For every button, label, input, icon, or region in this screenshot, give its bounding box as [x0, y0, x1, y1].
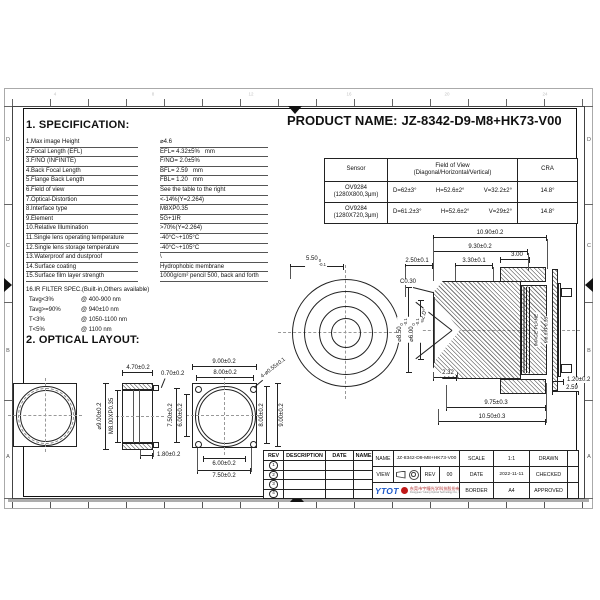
image-plane-label: IMAGE PLANE [536, 313, 541, 348]
spec-label: 14.Surface coating [26, 263, 138, 273]
ext-line [433, 372, 434, 379]
dim-line [438, 421, 546, 422]
layout-holder-circle [20, 390, 72, 442]
ruler-ticks-top [12, 99, 585, 106]
thread-spec-label: M8.0XP0.35 [546, 316, 551, 344]
dim-line [203, 458, 246, 459]
dim-line [140, 455, 153, 456]
zone-letter: A [587, 454, 591, 460]
spec-section-title: 1. SPECIFICATION: [26, 119, 129, 131]
tb-approved-label: APPROVED [529, 482, 567, 498]
spec-value: ⌀4.6 [160, 138, 268, 148]
dim-line [500, 259, 530, 260]
ext-line [455, 267, 456, 281]
dim-line [196, 377, 254, 378]
dim-line [405, 265, 433, 266]
holder-lip-top [153, 385, 159, 391]
rev-empty-cell [353, 489, 373, 498]
label: DRAWN [539, 456, 558, 462]
spec-label: 13.Waterproof and dustproof [26, 253, 138, 263]
dim-line [455, 265, 493, 266]
spec-label: 11.Single lens operating temperature [26, 234, 138, 244]
dim-line [176, 388, 177, 443]
value: 2022-11-11 [499, 472, 523, 477]
rev-number-cell: 2 [264, 470, 283, 479]
spec-label: 12.Single lens storage temperature [26, 244, 138, 254]
rev-number-cell: 1 [264, 460, 283, 469]
dim-line [105, 383, 106, 450]
spec-row: 13.Waterproof and dustproof\ [26, 253, 276, 263]
label: SCALE [468, 456, 485, 462]
ir-condition: Tavg<3% [26, 297, 81, 303]
ir-range: @ 940±10 nm [81, 307, 119, 313]
spec-row: 8.Interface typeM8XP0.35 [26, 205, 276, 215]
tb-logo-cell: YTOT 东莞市宇瞳光学科技股份有限公司Dongguan Yutong Opti… [373, 482, 459, 498]
image-plane-plate [558, 283, 561, 377]
label: CHECKED [536, 472, 561, 478]
thread-marks [521, 287, 531, 373]
spec-value: -40°C~+105°C [160, 234, 268, 244]
dim-5-50: 5.500-0.1 [305, 256, 327, 268]
ir-condition: Tavg>=90% [26, 307, 81, 313]
spec-row: 14.Surface coatingHydrophobic membrane [26, 263, 276, 273]
ext-line [290, 267, 291, 279]
centerline [116, 416, 164, 417]
dim-line [552, 391, 579, 392]
dim-thread-m8: M8.00XP0.35 [109, 397, 115, 435]
spec-value: BFL= 2.59 mm [160, 167, 268, 177]
spec-row: 2.Focal Length (EFL)EFL= 4.32±5% mm [26, 148, 276, 158]
sensor-header: Sensor [346, 166, 365, 173]
dim-line [186, 394, 187, 437]
fov-cell: D=61.2±3°H=52.6±2°V=29±2° [387, 202, 517, 223]
tb-drawn-label: DRAWN [529, 451, 567, 466]
rev-number: 4 [269, 490, 278, 499]
fov-vertical: V=32.2±2° [484, 188, 512, 195]
title-block: NAME JZ-8342-D9-M8+HK73-V00 SCALE 1:1 DR… [372, 450, 579, 499]
fov-diagonal: D=62±3° [393, 188, 417, 195]
ext-line [153, 450, 154, 457]
brand-emblem-icon [401, 487, 408, 494]
spec-label: 5.Flange Back Length [26, 176, 138, 186]
fov-horizontal: H=52.6±2° [436, 188, 465, 195]
dim-line [117, 390, 118, 443]
spec-value: <-14%(Y=2.264) [160, 196, 268, 206]
label: APPROVED [534, 488, 563, 494]
zone-letter: C [6, 243, 10, 249]
projection-target-icon [409, 470, 419, 480]
tb-checked-label: CHECKED [529, 466, 567, 482]
rev-header: REV [264, 451, 283, 460]
spec-label: 10.Relative Illumination [26, 224, 138, 234]
dim-1-80: 1.80±0.2 [156, 452, 181, 458]
sensor-fov-table: Sensor Field of View(Diagonal/Horizontal… [324, 158, 578, 224]
optical-section-title: 2. OPTICAL LAYOUT: [26, 334, 140, 346]
spec-value: 1000g/cm² pencil 500, back and forth [160, 272, 268, 282]
fov-vertical: V=29±2° [489, 209, 512, 216]
ir-filter-row: T<5%@ 1100 nm [26, 325, 276, 335]
cra-cell: 14.8° [517, 202, 577, 223]
spec-label: 6.Field of view [26, 186, 138, 196]
value: 1:1 [508, 456, 515, 462]
dim-line [433, 377, 457, 378]
ext-line [457, 372, 458, 379]
sensor-resolution: (1280X720,3μm) [334, 213, 379, 220]
chamfer-label: C0.30 [399, 279, 417, 285]
holder-back-circle [198, 389, 253, 444]
tb-border-value: A4 [493, 482, 529, 498]
dim-line [446, 407, 546, 408]
corner-hole [195, 386, 202, 393]
dim-3-00: 3.00 [510, 252, 524, 258]
spec-value: 5G+1IR [160, 215, 268, 225]
rev-header-label: DATE [332, 453, 346, 459]
rev-empty-cell [283, 460, 325, 469]
cra-value: 14.8° [540, 209, 554, 216]
spec-row: 6.Field of viewSee the table to the righ… [26, 186, 276, 196]
rev-header-label: NAME [356, 453, 372, 459]
dim-9-75: 9.75±0.3 [483, 400, 508, 406]
dim-7-50-left: 7.50±0.2 [168, 402, 174, 427]
tb-checked-value [567, 466, 578, 482]
centerline [186, 415, 264, 416]
dim-3-30: 3.30±0.1 [461, 258, 486, 264]
fov-cell: D=62±3°H=52.6±2°V=32.2±2° [387, 181, 517, 202]
sensor-resolution: (1280X800,3μm) [334, 192, 379, 199]
zone-letter: B [6, 348, 10, 354]
fov-header-cell: Field of View(Diagonal/Horizontal/Vertic… [387, 159, 517, 181]
rev-empty-cell [353, 470, 373, 479]
spec-value: See the table to the right [160, 186, 268, 196]
spec-row: 11.Single lens operating temperature-40°… [26, 234, 276, 244]
corner-hole [195, 441, 202, 448]
tb-date-label: DATE [459, 466, 493, 482]
tb-approved-value [567, 482, 578, 498]
ir-range: @ 1050-1100 nm [81, 317, 127, 323]
zone-number: 12 [248, 92, 253, 97]
dim-line [197, 470, 251, 471]
ir-condition: T<5% [26, 327, 81, 333]
dim-4-70: 4.70±0.2 [125, 365, 150, 371]
dim-6-00: ⌀6.000-0.1 [409, 317, 421, 343]
zone-number: 20 [444, 92, 449, 97]
ext-line [433, 239, 434, 281]
projection-frustum-icon [396, 471, 406, 479]
dim-9-00-dia: ⌀9.00±0.2 [97, 402, 103, 431]
dim-7-50-bottom: 7.50±0.2 [211, 473, 236, 479]
sensor-model: OV9284 [345, 206, 367, 213]
ir-filter-row: Tavg>=90%@ 940±10 nm [26, 305, 276, 315]
dim-10-90: 10.90±0.2 [476, 230, 505, 236]
tb-scale-label: SCALE [459, 451, 493, 466]
product-name: PRODUCT NAME:JZ-8342-D9-M8+HK73-V00 [287, 113, 562, 128]
cra-cell: 14.8° [517, 181, 577, 202]
cra-header: CRA [541, 166, 554, 173]
tb-drawn-value [567, 451, 578, 466]
dim-0-70: 0.70±0.2 [160, 371, 185, 377]
sensor-header-cell: Sensor [325, 159, 387, 181]
value: JZ-8342-D9-M8+HK73-V00 [397, 456, 457, 461]
ext-line [446, 385, 447, 409]
dim-line [277, 383, 278, 447]
ext-line [493, 267, 494, 281]
rev-number-cell: 4 [264, 489, 283, 498]
tol-lower: -0.1 [417, 318, 421, 325]
spec-value: M8XP0.35 [160, 205, 268, 215]
spec-row: 12.Single lens storage temperature-40°C~… [26, 244, 276, 254]
rev-empty-cell [353, 479, 373, 488]
tb-border-label: BORDER [459, 482, 493, 498]
dim-8-50: ⌀8.500-0.1 [397, 317, 409, 343]
rev-header: DATE [325, 451, 353, 460]
lock-nut-bottom [500, 379, 546, 394]
ir-filter-row: T<3%@ 1050-1100 nm [26, 315, 276, 325]
dim-6-00-left: 6.00±0.2 [178, 402, 184, 427]
ruler-ticks-right [585, 106, 593, 499]
dim-2-59: 2.59 [565, 385, 579, 391]
tb-view-label: VIEW [373, 466, 393, 482]
rev-number: 2 [269, 471, 278, 480]
dim-line [192, 366, 257, 367]
cra-header-cell: CRA [517, 159, 577, 181]
ir-filter-row: Tavg<3%@ 400-900 nm [26, 295, 276, 305]
holder-lip-bottom [153, 442, 159, 448]
ir-range: @ 1100 nm [81, 327, 112, 333]
tb-name-value: JZ-8342-D9-M8+HK73-V00 [393, 451, 459, 466]
tb-scale-value: 1:1 [493, 451, 529, 466]
holder-flange-top [122, 383, 153, 390]
rev-empty-cell [325, 489, 353, 498]
tb-view-symbols [393, 466, 420, 482]
dim-line [433, 237, 547, 238]
label: BORDER [465, 488, 487, 494]
cra-value: 14.8° [540, 188, 554, 195]
centerline [224, 377, 225, 455]
spec-label: 15.Surface film layer strength [26, 272, 138, 282]
corner-hole [250, 441, 257, 448]
spec-value: FBL= 1.20 mm [160, 176, 268, 186]
rev-header: NAME [353, 451, 373, 460]
ext-line [140, 450, 141, 457]
spec-value: F/NO= 2.0±5% [160, 157, 268, 167]
center-mark-left [4, 278, 12, 292]
rev-empty-cell [283, 470, 325, 479]
fov-header-line2: (Diagonal/Horizontal/Vertical) [414, 170, 492, 177]
rev-number: 1 [269, 461, 278, 470]
zone-letter: D [6, 137, 10, 143]
sensor-model: OV9284 [345, 185, 367, 192]
ir-range: @ 400-900 nm [81, 297, 121, 303]
spec-value: \ [160, 253, 268, 263]
fov-horizontal: H=52.6±2° [441, 209, 470, 216]
zone-number: 8 [152, 92, 155, 97]
label: REV [425, 472, 436, 478]
rev-number-cell: 3 [264, 479, 283, 488]
spec-label: 3.F/NO (INFINITE) [26, 157, 138, 167]
ext-line [197, 448, 198, 472]
rev-empty-cell [325, 470, 353, 479]
ruler-ticks-left [4, 106, 12, 499]
rev-header: DESCRIPTION [283, 451, 325, 460]
spec-row: 10.Relative Illumination>70%(Y=2.264) [26, 224, 276, 234]
dim-value: ⌀6.00 [409, 326, 415, 341]
spec-value: >70%(Y=2.264) [160, 224, 268, 234]
label: DATE [470, 472, 483, 478]
front-view-circle [331, 318, 361, 348]
dim-line [122, 372, 153, 373]
sensor-cell: OV9284(1280X800,3μm) [325, 181, 387, 202]
dim-8-00-top: 8.00±0.2 [212, 370, 237, 376]
dim-1-20: 1.20±0.2 [566, 377, 591, 383]
zone-number: 24 [542, 92, 547, 97]
tb-rev-label: REV [420, 466, 439, 482]
center-mark-right [585, 278, 593, 292]
dim-9-00-right: 9.00±0.2 [279, 402, 285, 427]
spec-value: -40°C~+105°C [160, 244, 268, 254]
spec-row: 9.Element5G+1IR [26, 215, 276, 225]
spec-list: 1.Max image Height⌀4.6 2.Focal Length (E… [26, 138, 276, 335]
ruler-ticks-bottom [12, 502, 585, 508]
spec-value: EFL= 4.32±5% mm [160, 148, 268, 158]
value: A4 [508, 488, 514, 494]
dim-value: 5.50 [306, 256, 318, 262]
rev-empty-cell [283, 489, 325, 498]
spec-label: 1.Max image Height [26, 138, 138, 148]
ext-line [547, 239, 548, 269]
fov-diagonal: D=61.2±3° [393, 209, 422, 216]
front-glass-line [434, 297, 435, 363]
lock-nut-top [500, 267, 546, 282]
spec-value: Hydrophobic membrane [160, 263, 268, 273]
ext-line [438, 409, 439, 423]
dim-line [552, 381, 564, 382]
value: 00 [447, 472, 453, 478]
rev-empty-cell [325, 460, 353, 469]
zone-letter: A [6, 454, 10, 460]
spec-row: 4.Back Focal LengthBFL= 2.59 mm [26, 167, 276, 177]
mount-stub-top [561, 288, 572, 297]
label: VIEW [376, 472, 389, 478]
centerline [45, 378, 46, 452]
label: NAME [376, 456, 391, 462]
spec-label: 4.Back Focal Length [26, 167, 138, 177]
tb-name-label: NAME [373, 451, 393, 466]
dim-9-30: 9.30±0.2 [467, 244, 492, 250]
brand-logo: YTOT [375, 486, 399, 496]
dim-value: ⌀8.50 [397, 326, 403, 341]
product-name-label: PRODUCT NAME: [287, 113, 398, 128]
ir-filter-heading: 16.IR FILTER SPEC.(Built-in,Others avail… [26, 285, 276, 295]
ext-line [546, 383, 547, 423]
spec-row: 7.Optical-Distortion<-14%(Y=2.264) [26, 196, 276, 206]
spec-row: 3.F/NO (INFINITE)F/NO= 2.0±5% [26, 157, 276, 167]
dim-10-50: 10.50±0.3 [478, 414, 507, 420]
company-name-en: Dongguan Yutong Optical Technology Co., … [410, 491, 459, 494]
product-name-value: JZ-8342-D9-M8+HK73-V00 [402, 113, 562, 128]
spec-label: 9.Element [26, 215, 138, 225]
spec-row: 5.Flange Back LengthFBL= 1.20 mm [26, 176, 276, 186]
ext-line [528, 253, 529, 271]
zone-number: 4 [54, 92, 57, 97]
spec-label: 2.Focal Length (EFL) [26, 148, 138, 158]
fov-header-line1: Field of View [435, 163, 469, 170]
ext-line [251, 448, 252, 472]
rev-empty-cell [325, 479, 353, 488]
tol-lower: -0.1 [319, 263, 326, 267]
rev-number: 3 [269, 480, 278, 489]
dim-6-00-bottom: 6.00±0.2 [211, 461, 236, 467]
drawing-sheet: D C B A D C B A 4 8 12 16 20 24 PRODUCT … [0, 0, 600, 600]
holder-flange-bottom [122, 443, 153, 450]
spec-label: 7.Optical-Distortion [26, 196, 138, 206]
dim-line [266, 386, 267, 444]
rev-empty-cell [353, 460, 373, 469]
spec-label: 8.Interface type [26, 205, 138, 215]
zone-letter: B [587, 348, 591, 354]
rev-header-label: DESCRIPTION [286, 453, 323, 459]
mount-stub-bottom [561, 364, 572, 373]
spec-row: 1.Max image Height⌀4.6 [26, 138, 276, 148]
rev-empty-cell [283, 479, 325, 488]
rev-header-label: REV [268, 453, 279, 459]
revision-table: REV DESCRIPTION DATE NAME 1 2 3 4 [263, 450, 374, 499]
zone-number: 16 [346, 92, 351, 97]
tb-rev-value: 00 [439, 466, 459, 482]
zone-letter: C [587, 243, 591, 249]
ir-condition: T<3% [26, 317, 81, 323]
dim-2-32: 2.32 [441, 370, 455, 376]
dim-2-50: 2.50±0.1 [404, 258, 429, 264]
zone-letter: D [587, 137, 591, 143]
tb-date-value: 2022-11-11 [493, 466, 529, 482]
sensor-cell: OV9284(1280X720,3μm) [325, 202, 387, 223]
spec-row: 15.Surface film layer strength1000g/cm² … [26, 272, 276, 282]
dim-9-00-top: 9.00±0.2 [211, 359, 236, 365]
dim-8-00-right: 8.00±0.2 [259, 402, 265, 427]
